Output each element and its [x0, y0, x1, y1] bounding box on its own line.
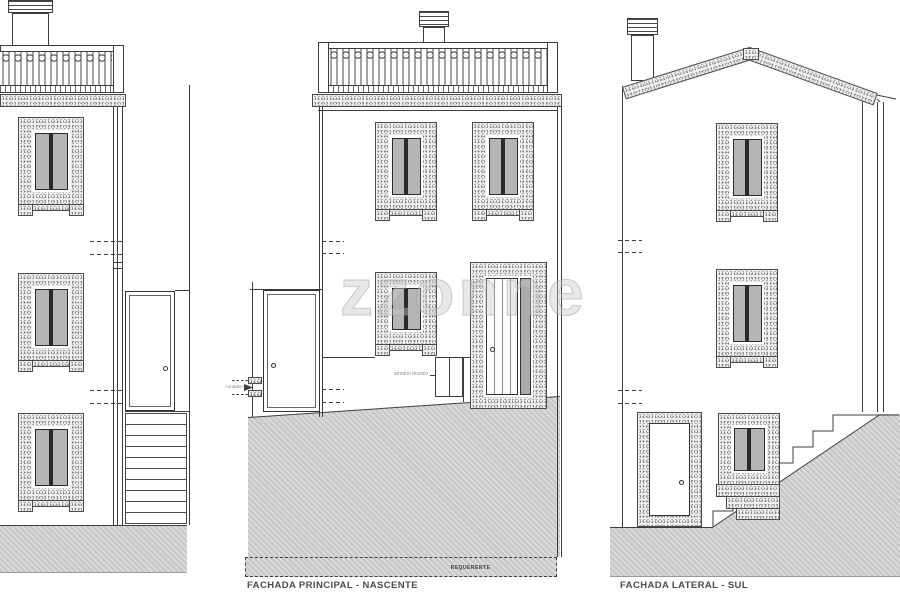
window-sill [32, 204, 70, 211]
window-leaf [35, 429, 51, 486]
caption-lateral: FACHADA LATERAL - SUL [620, 580, 748, 591]
door-knob [490, 347, 495, 352]
window [18, 413, 84, 501]
window-foot [18, 204, 33, 216]
window-sill [32, 360, 70, 367]
window-foot [716, 210, 731, 222]
window-leaf [52, 133, 68, 190]
window-foot [716, 356, 731, 368]
window-sill [730, 210, 764, 217]
window-leaves [731, 425, 767, 473]
window-foot [18, 360, 33, 372]
chimney-cap [627, 18, 658, 35]
window-leaves [486, 135, 520, 197]
door-panel [129, 295, 171, 407]
window [18, 117, 84, 205]
window [375, 122, 437, 210]
window [716, 123, 778, 211]
window-foot [422, 209, 437, 221]
window-leaves [32, 286, 70, 348]
window-leaf [52, 429, 68, 486]
balustrade-post [547, 42, 558, 93]
requerente-strip: REQUERENTE [245, 557, 557, 577]
window-leaves [32, 426, 70, 488]
window-foot [375, 344, 390, 356]
window [472, 122, 534, 210]
window [716, 269, 778, 357]
window-foot [69, 500, 84, 512]
door-panel [267, 294, 316, 408]
balustrade-balusters [0, 52, 112, 85]
cornice [312, 94, 562, 107]
balustrade-post [113, 45, 124, 93]
meter-label: contador [205, 384, 243, 389]
door [649, 423, 690, 516]
meter-box [248, 390, 262, 397]
window-foot [763, 356, 778, 368]
window-leaf [52, 289, 68, 346]
door-knob [163, 366, 168, 371]
downpipe-lines [114, 107, 123, 525]
window-leaf [504, 138, 518, 195]
window [18, 273, 84, 361]
balustrade-bottom-rail [318, 85, 558, 93]
window-sill [486, 209, 520, 216]
door-knob [679, 480, 684, 485]
window-leaf [407, 138, 421, 195]
door-surround [637, 412, 702, 527]
window-foot [18, 500, 33, 512]
window-leaf [748, 285, 762, 342]
cornice [0, 94, 126, 107]
side-door [263, 290, 320, 412]
window-leaf [733, 285, 747, 342]
window-leaf [734, 428, 749, 471]
window-leaves [32, 130, 70, 192]
window [718, 413, 780, 485]
window-sill [32, 500, 70, 507]
balustrade [0, 45, 124, 93]
technical-cabinet [435, 357, 463, 397]
requerente-label: REQUERENTE [451, 565, 491, 571]
balustrade-bottom-rail [0, 85, 124, 93]
balustrade-top-rail [318, 42, 558, 49]
window-sill [389, 344, 423, 351]
window-foot [375, 209, 390, 221]
wall-edge-right [558, 107, 562, 557]
balustrade-top-rail [0, 45, 124, 52]
level-dashes-lateral [618, 241, 642, 404]
window-leaf [748, 139, 762, 196]
door-leaf [649, 423, 690, 516]
stairs [125, 413, 187, 524]
window-leaves [389, 135, 423, 197]
door [125, 291, 175, 411]
window-leaves [730, 136, 764, 198]
chimney-cap [419, 11, 449, 27]
window-sill [730, 356, 764, 363]
chimney-body [12, 13, 49, 46]
chimney-cap [8, 0, 53, 13]
window-foot [69, 360, 84, 372]
cabinet-label: armário técnico [368, 371, 428, 377]
window-leaf [392, 138, 406, 195]
window-foot [763, 210, 778, 222]
chimney-body [631, 35, 654, 81]
window-leaves [730, 282, 764, 344]
elevation-drawing-canvas: armário técnico contador REQUERENTE FACH… [0, 0, 900, 597]
window-sill [389, 209, 423, 216]
balustrade-post [318, 42, 329, 93]
window-leaf [35, 289, 51, 346]
window-foot [519, 209, 534, 221]
cabinet-divider [449, 358, 450, 396]
window-leaf [35, 133, 51, 190]
window-leaf [733, 139, 747, 196]
balustrade-balusters [328, 49, 548, 85]
roof-ridge [743, 48, 759, 60]
window-foot [69, 204, 84, 216]
door-knob [271, 363, 276, 368]
window-leaf [750, 428, 765, 471]
window-foot [472, 209, 487, 221]
balustrade [318, 42, 558, 93]
watermark: zzonne [340, 254, 588, 330]
downpipe [877, 102, 884, 412]
window-foot [422, 344, 437, 356]
meter-box [248, 377, 262, 384]
caption-principal: FACHADA PRINCIPAL - NASCENTE [247, 580, 418, 591]
window-base-step [736, 508, 780, 520]
window-leaf [489, 138, 503, 195]
